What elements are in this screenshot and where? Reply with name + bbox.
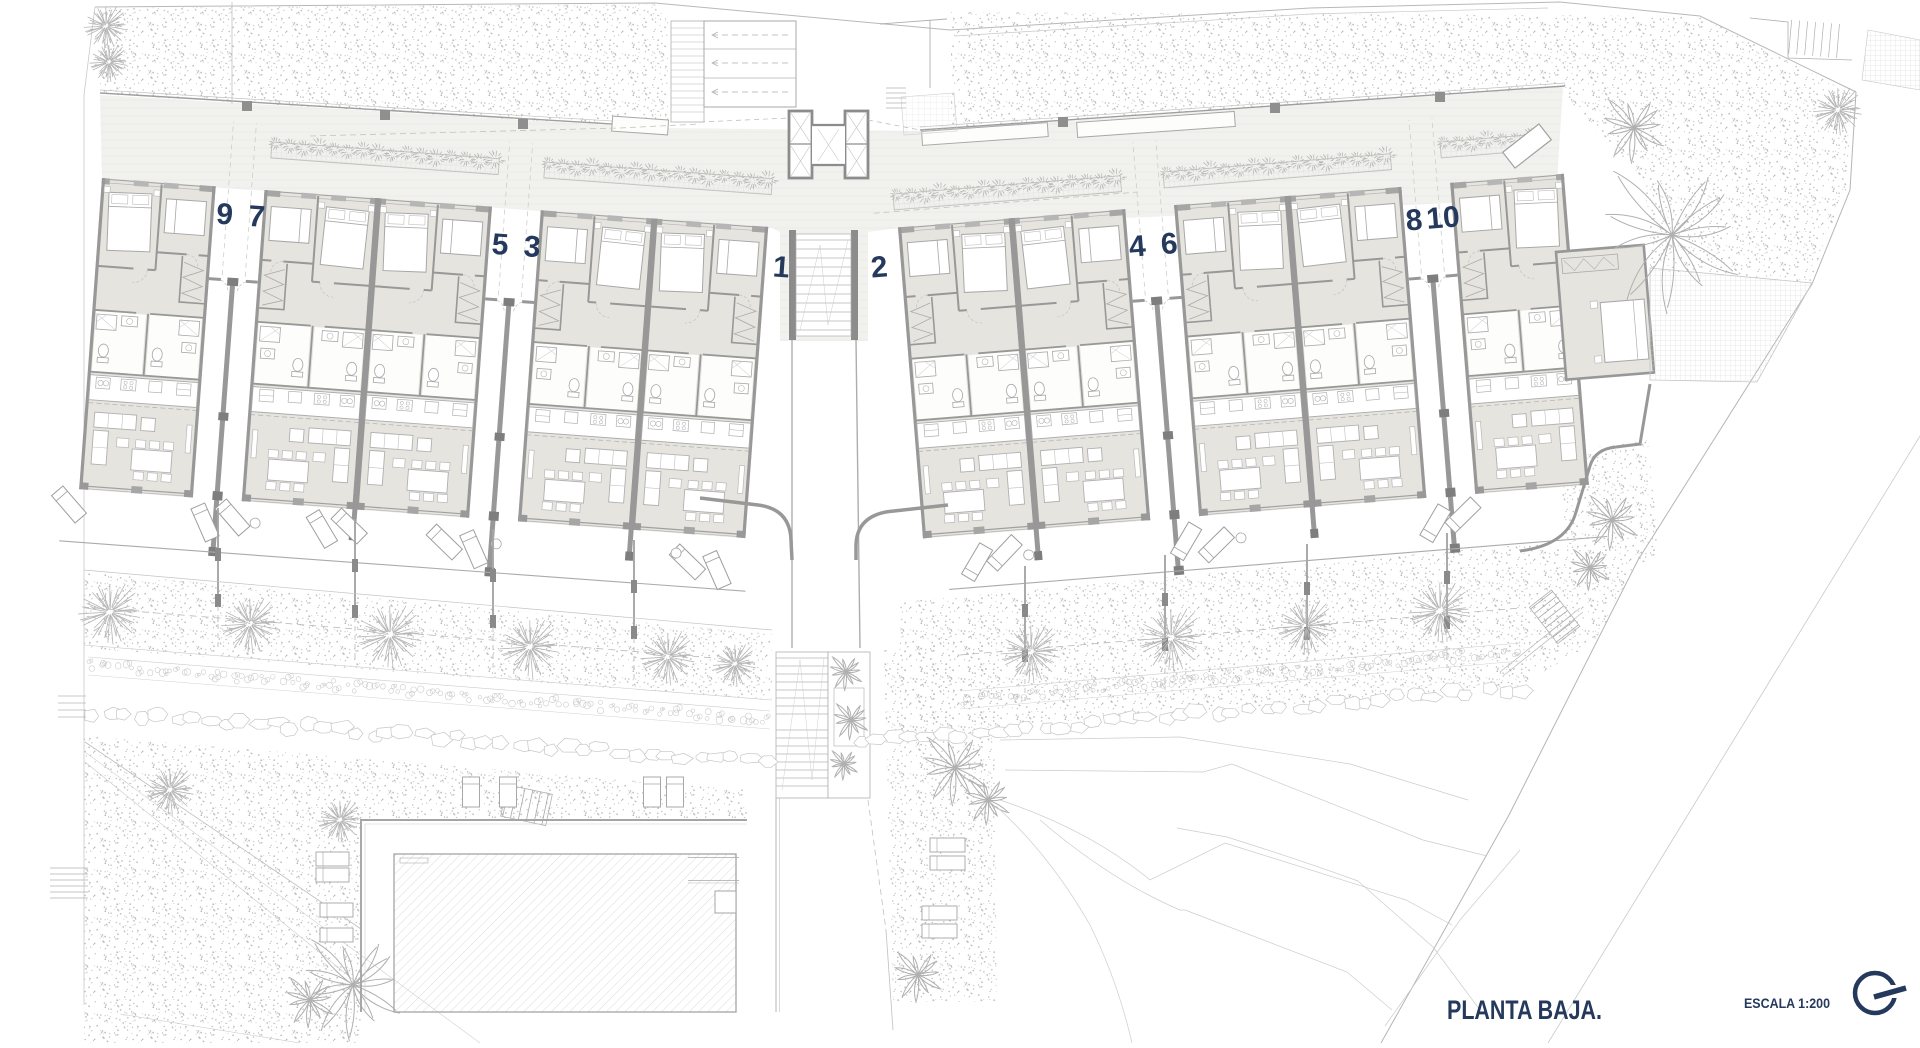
svg-text:1: 1 <box>772 250 791 284</box>
svg-text:4: 4 <box>1128 230 1148 264</box>
svg-text:10: 10 <box>1425 200 1461 236</box>
svg-text:9: 9 <box>215 198 234 232</box>
svg-text:5: 5 <box>491 228 510 262</box>
svg-text:PLANTA BAJA.: PLANTA BAJA. <box>1447 995 1602 1025</box>
svg-text:8: 8 <box>1404 203 1423 237</box>
svg-text:7: 7 <box>247 200 266 234</box>
svg-text:ESCALA 1:200: ESCALA 1:200 <box>1744 996 1830 1011</box>
svg-text:6: 6 <box>1160 227 1179 261</box>
svg-text:2: 2 <box>869 250 888 284</box>
svg-text:3: 3 <box>523 230 542 264</box>
